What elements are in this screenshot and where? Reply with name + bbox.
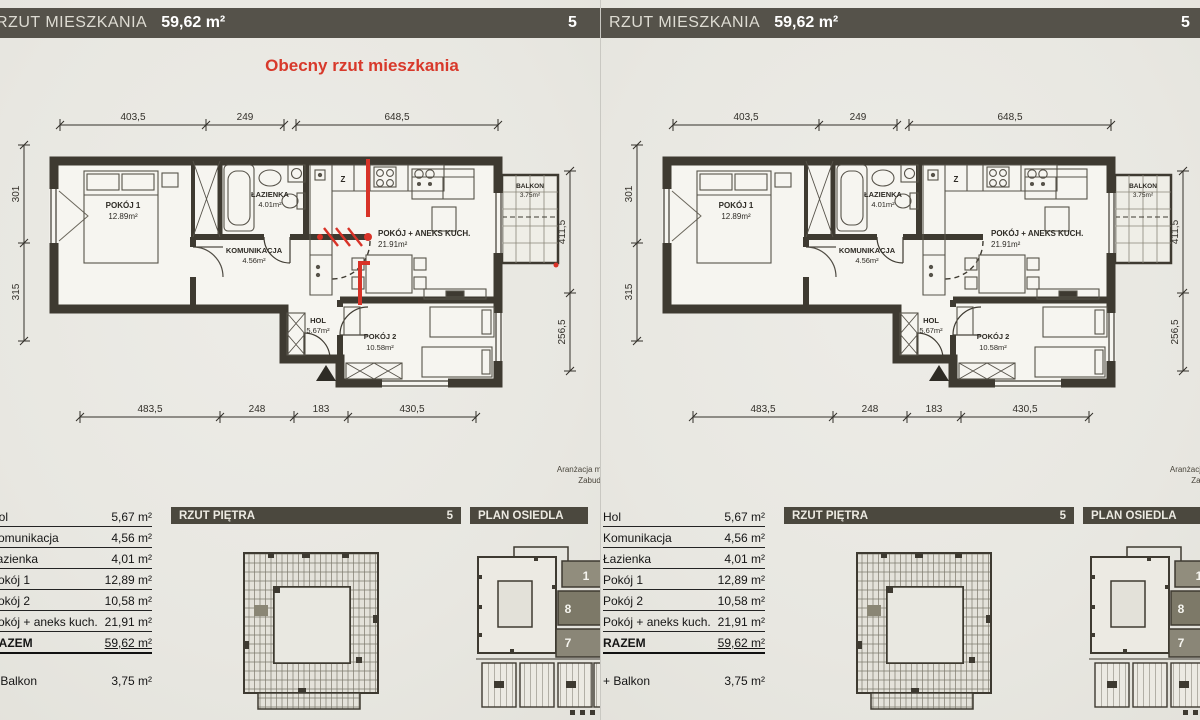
floor-plan-header-bar: RZUT PIĘTRA 5 [784, 507, 1074, 524]
row-label: Komunikacja [0, 531, 59, 545]
document-copy-left: RZUT MIESZKANIA 59,62 m² 5 Obecny rzut m… [0, 0, 600, 720]
room-label: POKÓJ + ANEKS KUCH. [378, 229, 470, 238]
room-area: 4.01m² [871, 200, 895, 209]
balcony-label: + Balkon [0, 674, 37, 688]
fine-print-line: Aranżacja mieszka [424, 464, 600, 475]
kitchen-sign: Z [954, 175, 959, 184]
balcony-label: + Balkon [603, 674, 650, 688]
floor-level-plan [238, 545, 398, 715]
room-area: 4.01m² [258, 200, 282, 209]
row-value: 4,56 m² [111, 531, 152, 545]
fine-print: Aranżacja mieszka Zabudowa G odpły [1037, 464, 1200, 497]
site-plan-header-bar: PLAN OSIEDLA [1083, 507, 1200, 524]
site-plan-title: PLAN OSIEDLA [1091, 510, 1177, 522]
scanned-floorplan-page: RZUT MIESZKANIA 59,62 m² 5 Obecny rzut m… [601, 0, 1200, 720]
row-label: Hol [0, 510, 8, 524]
room-label: BALKON [516, 183, 544, 190]
room-area: 12.89m² [108, 212, 138, 221]
building-number: 1 [583, 569, 590, 583]
row-value: 10,58 m² [718, 594, 765, 608]
fine-print: Aranżacja mieszka Zabudowa G odpły [424, 464, 600, 497]
fine-print-line: Aranżacja mieszka [1037, 464, 1200, 475]
row-label: Pokój 2 [0, 594, 30, 608]
room-area: 10.58m² [366, 343, 394, 352]
dimension-label: 315 [11, 283, 22, 300]
row-value: 5,67 m² [111, 510, 152, 524]
table-row: Łazienka 4,01 m² [0, 548, 152, 569]
room-area: 3.75m² [520, 192, 541, 199]
apartment-area: 59,62 m² [161, 14, 225, 32]
page-header-bar: RZUT MIESZKANIA 59,62 m² 5 [601, 8, 1200, 38]
apartment-floor-plan: POKÓJ 1 12.89m² ŁAZIENKA 4.01m² KOMUNIKA… [0, 95, 600, 505]
room-label: BALKON [1129, 183, 1157, 190]
room-area: 5.67m² [919, 326, 943, 335]
kitchen-sign: Z [341, 175, 346, 184]
area-table: Hol 5,67 m² Komunikacja 4,56 m² Łazienka… [603, 506, 765, 690]
room-area: 21.91m² [991, 240, 1021, 249]
page-title: RZUT MIESZKANIA [609, 14, 760, 32]
balcony-value: 3,75 m² [111, 674, 152, 688]
row-label: Pokój 2 [603, 594, 643, 608]
page-title: RZUT MIESZKANIA [0, 14, 147, 32]
area-table: Hol 5,67 m² Komunikacja 4,56 m² Łazienka… [0, 506, 152, 690]
site-plan-header-bar: PLAN OSIEDLA [470, 507, 588, 524]
room-area: 12.89m² [721, 212, 751, 221]
room-label: KOMUNIKACJA [226, 246, 283, 255]
table-row: Pokój 2 10,58 m² [603, 590, 765, 611]
room-label: POKÓJ 1 [719, 201, 754, 210]
room-area: 4.56m² [855, 256, 879, 265]
table-row: Pokój 1 12,89 m² [0, 569, 152, 590]
dimension-label: 483,5 [750, 404, 775, 415]
dimension-label: 483,5 [137, 404, 162, 415]
table-row: Pokój 1 12,89 m² [603, 569, 765, 590]
table-total-row: RAZEM 59,62 m² [603, 632, 765, 654]
room-label: HOL [923, 316, 939, 325]
room-label: ŁAZIENKA [864, 190, 902, 199]
table-row: Hol 5,67 m² [0, 506, 152, 527]
row-value: 5,67 m² [724, 510, 765, 524]
dimension-label: 315 [624, 283, 635, 300]
table-balcony-row: + Balkon 3,75 m² [603, 670, 765, 690]
total-label: RAZEM [0, 636, 33, 650]
dimension-label: 183 [313, 404, 330, 415]
table-row: Pokój + aneks kuch. 21,91 m² [0, 611, 152, 632]
estate-site-plan: 1 8 7 [470, 535, 600, 717]
dimension-label: 411,5 [557, 219, 568, 244]
table-balcony-row: + Balkon 3,75 m² [0, 670, 152, 690]
row-value: 10,58 m² [105, 594, 152, 608]
table-row: Hol 5,67 m² [603, 506, 765, 527]
dimension-label: 249 [237, 112, 254, 123]
table-row: Komunikacja 4,56 m² [0, 527, 152, 548]
dimension-label: 256,5 [557, 319, 568, 344]
table-row: Pokój 2 10,58 m² [0, 590, 152, 611]
row-value: 4,01 m² [724, 552, 765, 566]
total-value: 59,62 m² [718, 636, 765, 650]
dimension-label: 403,5 [120, 112, 145, 123]
dimension-label: 430,5 [1012, 404, 1037, 415]
dimension-label: 648,5 [997, 112, 1022, 123]
row-value: 4,01 m² [111, 552, 152, 566]
row-label: Hol [603, 510, 621, 524]
dimension-label: 256,5 [1170, 319, 1181, 344]
room-label: HOL [310, 316, 326, 325]
fine-print-line: Zabudowa G [1037, 475, 1200, 486]
estate-site-plan: 1 8 7 [1083, 535, 1200, 717]
dimension-label: 301 [11, 185, 22, 202]
apartment-floor-plan: POKÓJ 1 12.89m² ŁAZIENKA 4.01m² KOMUNIKA… [611, 95, 1200, 505]
floor-plan-page-number: 5 [447, 510, 453, 522]
row-value: 21,91 m² [718, 615, 765, 629]
row-value: 4,56 m² [724, 531, 765, 545]
table-row: Pokój + aneks kuch. 21,91 m² [603, 611, 765, 632]
entrance-marker [316, 365, 336, 381]
fine-print-line: Zabudowa G [424, 475, 600, 486]
dimension-label: 248 [862, 404, 879, 415]
page-number: 5 [1181, 14, 1190, 32]
row-label: Pokój 1 [0, 573, 30, 587]
row-label: Pokój + aneks kuch. [0, 615, 98, 629]
room-area: 3.75m² [1133, 192, 1154, 199]
table-row: Łazienka 4,01 m² [603, 548, 765, 569]
apartment-area: 59,62 m² [774, 14, 838, 32]
table-total-row: RAZEM 59,62 m² [0, 632, 152, 654]
dimension-label: 411,5 [1170, 219, 1181, 244]
page-number: 5 [568, 14, 577, 32]
table-row: Komunikacja 4,56 m² [603, 527, 765, 548]
room-area: 21.91m² [378, 240, 408, 249]
floor-level-plan [851, 545, 1011, 715]
floor-plan-header-bar: RZUT PIĘTRA 5 [171, 507, 461, 524]
room-label: KOMUNIKACJA [839, 246, 896, 255]
dimension-label: 648,5 [384, 112, 409, 123]
document-copy-right: RZUT MIESZKANIA 59,62 m² 5 Obecny rzut m… [600, 0, 1200, 720]
total-label: RAZEM [603, 636, 646, 650]
site-plan-title: PLAN OSIEDLA [478, 510, 564, 522]
balcony-value: 3,75 m² [724, 674, 765, 688]
row-value: 21,91 m² [105, 615, 152, 629]
room-label: ŁAZIENKA [251, 190, 289, 199]
floor-plan-page-number: 5 [1060, 510, 1066, 522]
building-number: 8 [1178, 602, 1185, 616]
fine-print-line: odpły [424, 486, 600, 497]
building-number: 1 [1196, 569, 1200, 583]
row-label: Komunikacja [603, 531, 672, 545]
scanned-floorplan-page: RZUT MIESZKANIA 59,62 m² 5 Obecny rzut m… [0, 0, 600, 720]
screenshot-canvas: RZUT MIESZKANIA 59,62 m² 5 Obecny rzut m… [0, 0, 1200, 720]
row-label: Łazienka [0, 552, 38, 566]
room-label: POKÓJ + ANEKS KUCH. [991, 229, 1083, 238]
floor-plan-title: RZUT PIĘTRA [179, 510, 255, 522]
page-header-bar: RZUT MIESZKANIA 59,62 m² 5 [0, 8, 600, 38]
room-label: POKÓJ 2 [977, 332, 1010, 341]
building-number: 8 [565, 602, 572, 616]
row-value: 12,89 m² [718, 573, 765, 587]
row-value: 12,89 m² [105, 573, 152, 587]
room-area: 4.56m² [242, 256, 266, 265]
dimension-label: 183 [926, 404, 943, 415]
dimension-label: 403,5 [733, 112, 758, 123]
room-label: POKÓJ 1 [106, 201, 141, 210]
dimension-label: 248 [249, 404, 266, 415]
room-area: 5.67m² [306, 326, 330, 335]
total-value: 59,62 m² [105, 636, 152, 650]
row-label: Łazienka [603, 552, 651, 566]
entrance-marker [929, 365, 949, 381]
row-label: Pokój + aneks kuch. [603, 615, 711, 629]
floor-plan-title: RZUT PIĘTRA [792, 510, 868, 522]
building-number: 7 [565, 636, 572, 650]
dimension-label: 301 [624, 185, 635, 202]
dimension-label: 249 [850, 112, 867, 123]
room-area: 10.58m² [979, 343, 1007, 352]
building-number: 7 [1178, 636, 1185, 650]
row-label: Pokój 1 [603, 573, 643, 587]
fine-print-line: odpły [1037, 486, 1200, 497]
room-label: POKÓJ 2 [364, 332, 397, 341]
annotation-title: Obecny rzut mieszkania [246, 56, 478, 76]
dimension-label: 430,5 [399, 404, 424, 415]
